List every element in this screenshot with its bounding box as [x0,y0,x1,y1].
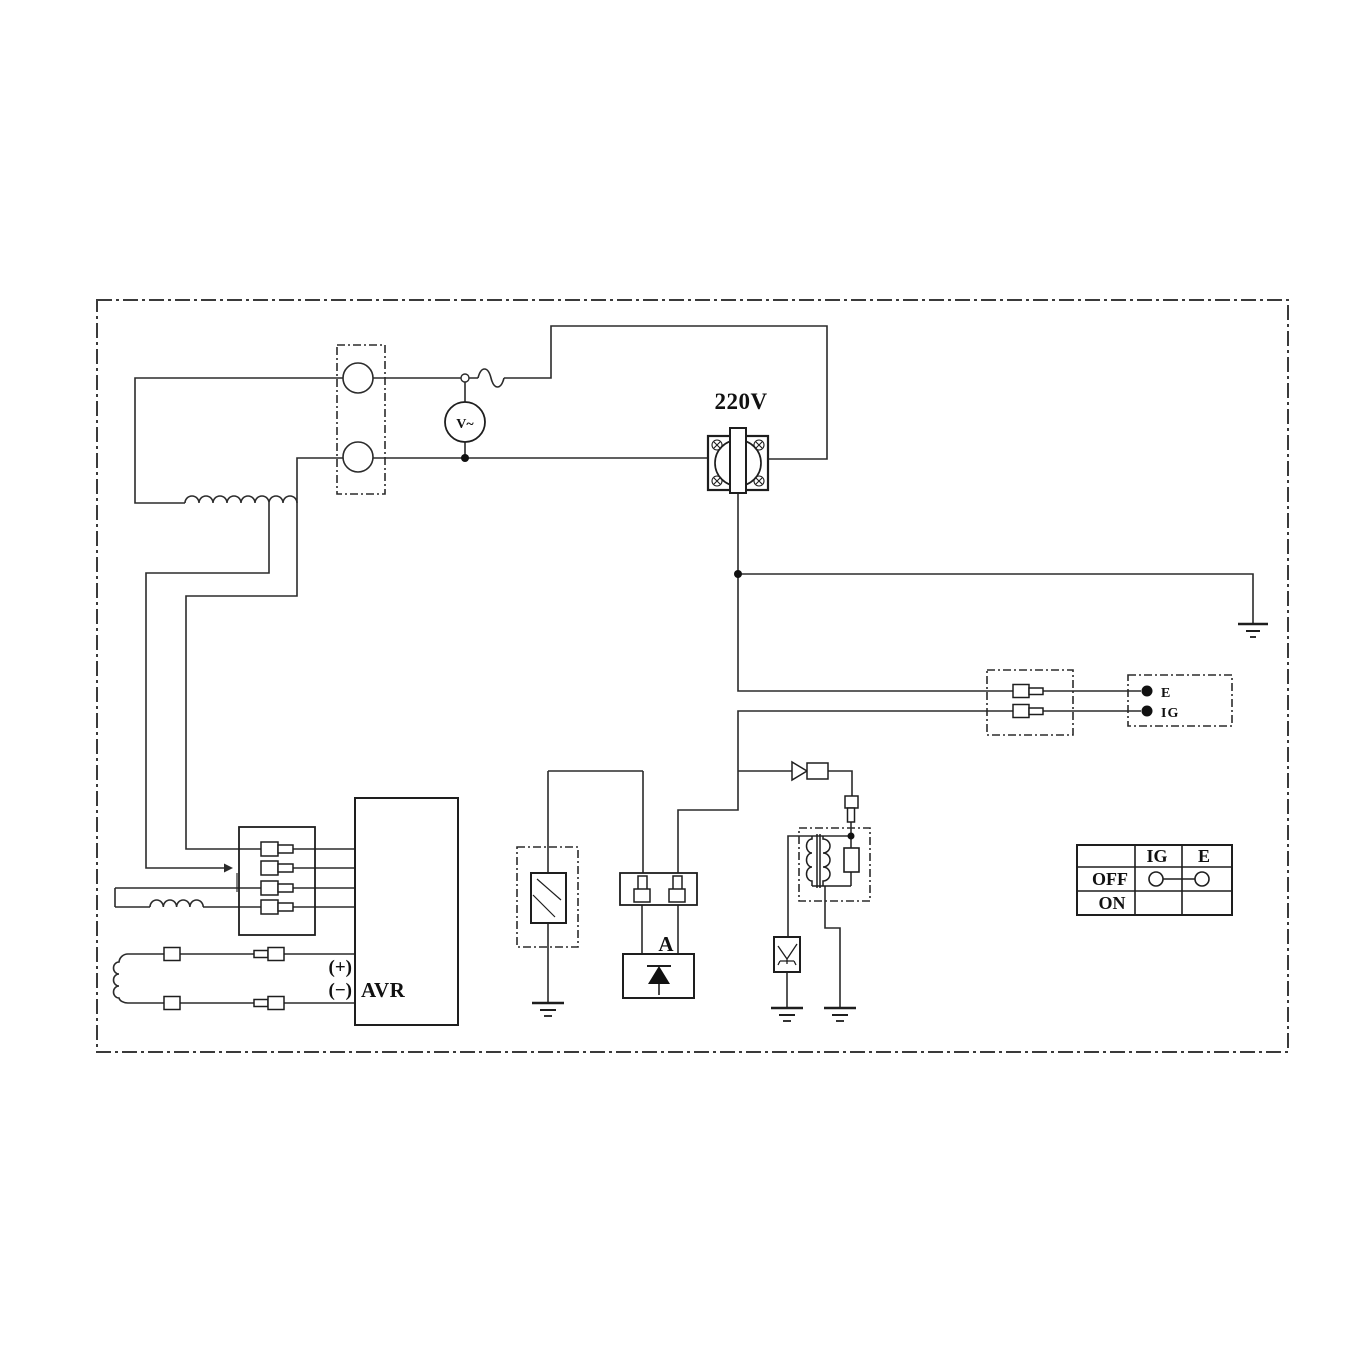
junction-dot [461,454,469,462]
coil-ground-wire [825,886,840,1008]
ground-cdi-icon [771,1008,803,1021]
cdi-unit-box [774,937,800,972]
primary-winding [807,836,813,886]
switch-terminal-box [1128,675,1232,726]
fuse-symbol [478,369,504,387]
junction-open [461,374,469,382]
oil-alert-unit: A [620,873,697,998]
oil-unit-label: A [658,932,674,956]
pins-to-avr [293,849,355,907]
table-row-on: ON [1099,893,1126,913]
wire-to-pin2 [146,503,269,868]
table-row-off: OFF [1092,869,1128,889]
ground-lamp-icon [532,1003,564,1016]
stator-connector [239,827,315,935]
avr-plus-label: (+) [329,957,352,978]
table-col-ig: IG [1146,846,1167,866]
junction-dot [848,833,855,840]
outlet-voltage-label: 220V [714,389,767,414]
secondary-winding [823,836,830,886]
wire-main-top [135,378,343,503]
charge-winding-coil [114,954,129,1003]
wire-e-line [738,574,1141,691]
resistor-block [807,763,828,779]
terminal-ig-label: IG [1161,706,1179,721]
excitation-winding-coil [150,900,203,907]
diode-icon [792,762,807,780]
avr-minus-label: (−) [329,980,352,1001]
coil-resistor [844,848,859,872]
main-winding-coil [185,496,297,503]
terminal-e-dot [1142,686,1153,697]
junction-dot [734,570,742,578]
wire-ground-bus [738,574,1253,624]
wire-main-bottom [297,458,343,503]
wiring-diagram: V~ 220V E IG [0,0,1352,1352]
output-terminal-block [337,345,385,494]
spark-plug-cap [845,796,858,808]
ground-main-icon [1238,624,1268,637]
diagram-border [97,300,1288,1052]
terminal-e-label: E [1161,686,1171,701]
spark-plug-stem [848,808,855,822]
wire-top-loop [504,326,827,459]
terminal-ig-dot [1142,706,1153,717]
table-col-e: E [1198,846,1210,866]
wire-arrow [224,864,233,873]
switch-table: IG E OFF ON [1077,845,1232,915]
page: V~ 220V E IG [0,0,1352,1352]
stator-pins [261,842,293,914]
transformer-core [817,834,820,888]
engine-stop-connector: E IG [987,670,1232,735]
bullet-connectors [1013,685,1043,718]
charge-wires [128,954,355,1003]
terminal-circle-bottom [343,442,373,472]
voltmeter-label: V~ [456,417,474,432]
bullet-connector-box [987,670,1073,735]
charge-winding-connectors [164,948,284,1010]
ground-ignition-icon [824,1008,856,1021]
outlet-slot [730,428,746,493]
avr-label: AVR [361,978,406,1002]
wire-ig-line [678,711,1141,877]
wire-to-plugcap [828,771,852,797]
wire-to-pin1 [186,503,297,849]
terminal-circle-top [343,363,373,393]
avr-unit: (+) (−) AVR [329,798,458,1025]
